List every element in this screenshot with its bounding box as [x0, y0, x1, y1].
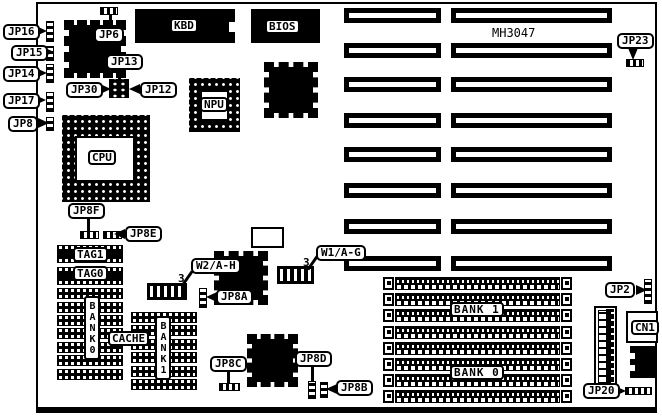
jumper-jp8f [80, 231, 99, 239]
cache-label: CACHE [108, 331, 149, 346]
io-qfp-chip [264, 62, 318, 118]
label-jp12: JP12 [140, 82, 177, 98]
bios-chip-label: BIOS [265, 19, 300, 34]
isa-slot-segment [451, 256, 612, 271]
isa-slot-segment [344, 219, 441, 234]
label-jp8c: JP8C [210, 356, 247, 372]
isa-slot-segment [344, 183, 441, 198]
bank1-cache-label: BANK1 [155, 316, 171, 380]
pointer-jp8f [87, 217, 90, 232]
pointer-jp12 [129, 84, 140, 94]
isa-slot-segment [344, 77, 441, 92]
tag1-label: TAG1 [73, 247, 108, 262]
jumper-jp14 [46, 64, 54, 83]
dram-controller-qfp-chip [247, 334, 298, 387]
kbd-chip-notch [229, 22, 235, 32]
pointer-jp8d [311, 365, 314, 382]
simm-socket [383, 277, 572, 290]
pointer-jp8e [114, 229, 125, 239]
oscillator-box [251, 227, 284, 248]
label-jp8: JP8 [8, 116, 38, 132]
tag0-label: TAG0 [73, 266, 108, 281]
isa-slot-segment [451, 113, 612, 128]
label-jp13: JP13 [106, 54, 143, 70]
label-jp14: JP14 [3, 66, 40, 82]
label-w2: W2/A-H [191, 258, 241, 274]
pointer-jp8c [227, 370, 230, 384]
jumper-jp8d [308, 381, 316, 399]
pointer-jp2 [636, 285, 647, 295]
jumper-jp23 [626, 59, 644, 67]
label-jp8a: JP8A [216, 289, 253, 305]
cpu-label: CPU [88, 150, 116, 165]
simm-socket [383, 326, 572, 339]
isa-slot-segment [451, 77, 612, 92]
pointer-jp8 [38, 118, 49, 128]
label-jp8d: JP8D [295, 351, 332, 367]
simm-socket [383, 342, 572, 355]
label-jp8e: JP8E [125, 226, 162, 242]
pointer-jp23 [628, 48, 638, 60]
jumper-jp16 [46, 21, 54, 42]
isa-slot-segment [344, 113, 441, 128]
label-jp20: JP20 [583, 383, 620, 399]
board-model-text: MH3047 [492, 26, 535, 40]
simm-socket [383, 390, 572, 403]
bank0-cache-label: BANK0 [84, 296, 100, 360]
label-jp8b: JP8B [336, 380, 373, 396]
power-connector [594, 306, 617, 387]
label-jp23: JP23 [617, 33, 654, 49]
bank1-simm-label: BANK 1 [450, 302, 504, 317]
isa-slot-segment [451, 219, 612, 234]
label-jp16: JP16 [3, 24, 40, 40]
label-jp8f: JP8F [68, 203, 105, 219]
label-jp30: JP30 [66, 82, 103, 98]
label-jp15: JP15 [11, 45, 48, 61]
isa-slot-segment [344, 147, 441, 162]
jumper-jp13-jp30-jp12 [109, 79, 129, 98]
label-jp17: JP17 [3, 93, 40, 109]
pointer-jp6 [109, 14, 112, 28]
jumper-block-w2 [147, 283, 187, 300]
keyboard-din-connector [630, 346, 657, 378]
bank0-simm-label: BANK 0 [450, 365, 504, 380]
sram-chip [131, 379, 197, 390]
npu-label: NPU [200, 97, 228, 112]
kbd-chip-label: KBD [170, 18, 198, 33]
isa-slot-segment [451, 147, 612, 162]
jumper-jp20 [625, 387, 652, 395]
isa-slot-segment [451, 183, 612, 198]
jumper-jp8c [219, 383, 240, 391]
motherboard-diagram: MH3047 KBD BIOS NPU CPU JP16 JP15 JP14 J… [0, 0, 662, 416]
label-jp2: JP2 [605, 282, 635, 298]
label-jp6: JP6 [94, 27, 124, 43]
isa-slot-segment [451, 43, 612, 58]
jumper-jp17 [46, 92, 54, 112]
cn1-label: CN1 [631, 320, 659, 335]
isa-slot-segment [451, 8, 612, 23]
label-w1: W1/A-G [316, 245, 366, 261]
isa-slot-segment [344, 43, 441, 58]
isa-slot-segment [344, 8, 441, 23]
sram-chip [57, 369, 123, 380]
